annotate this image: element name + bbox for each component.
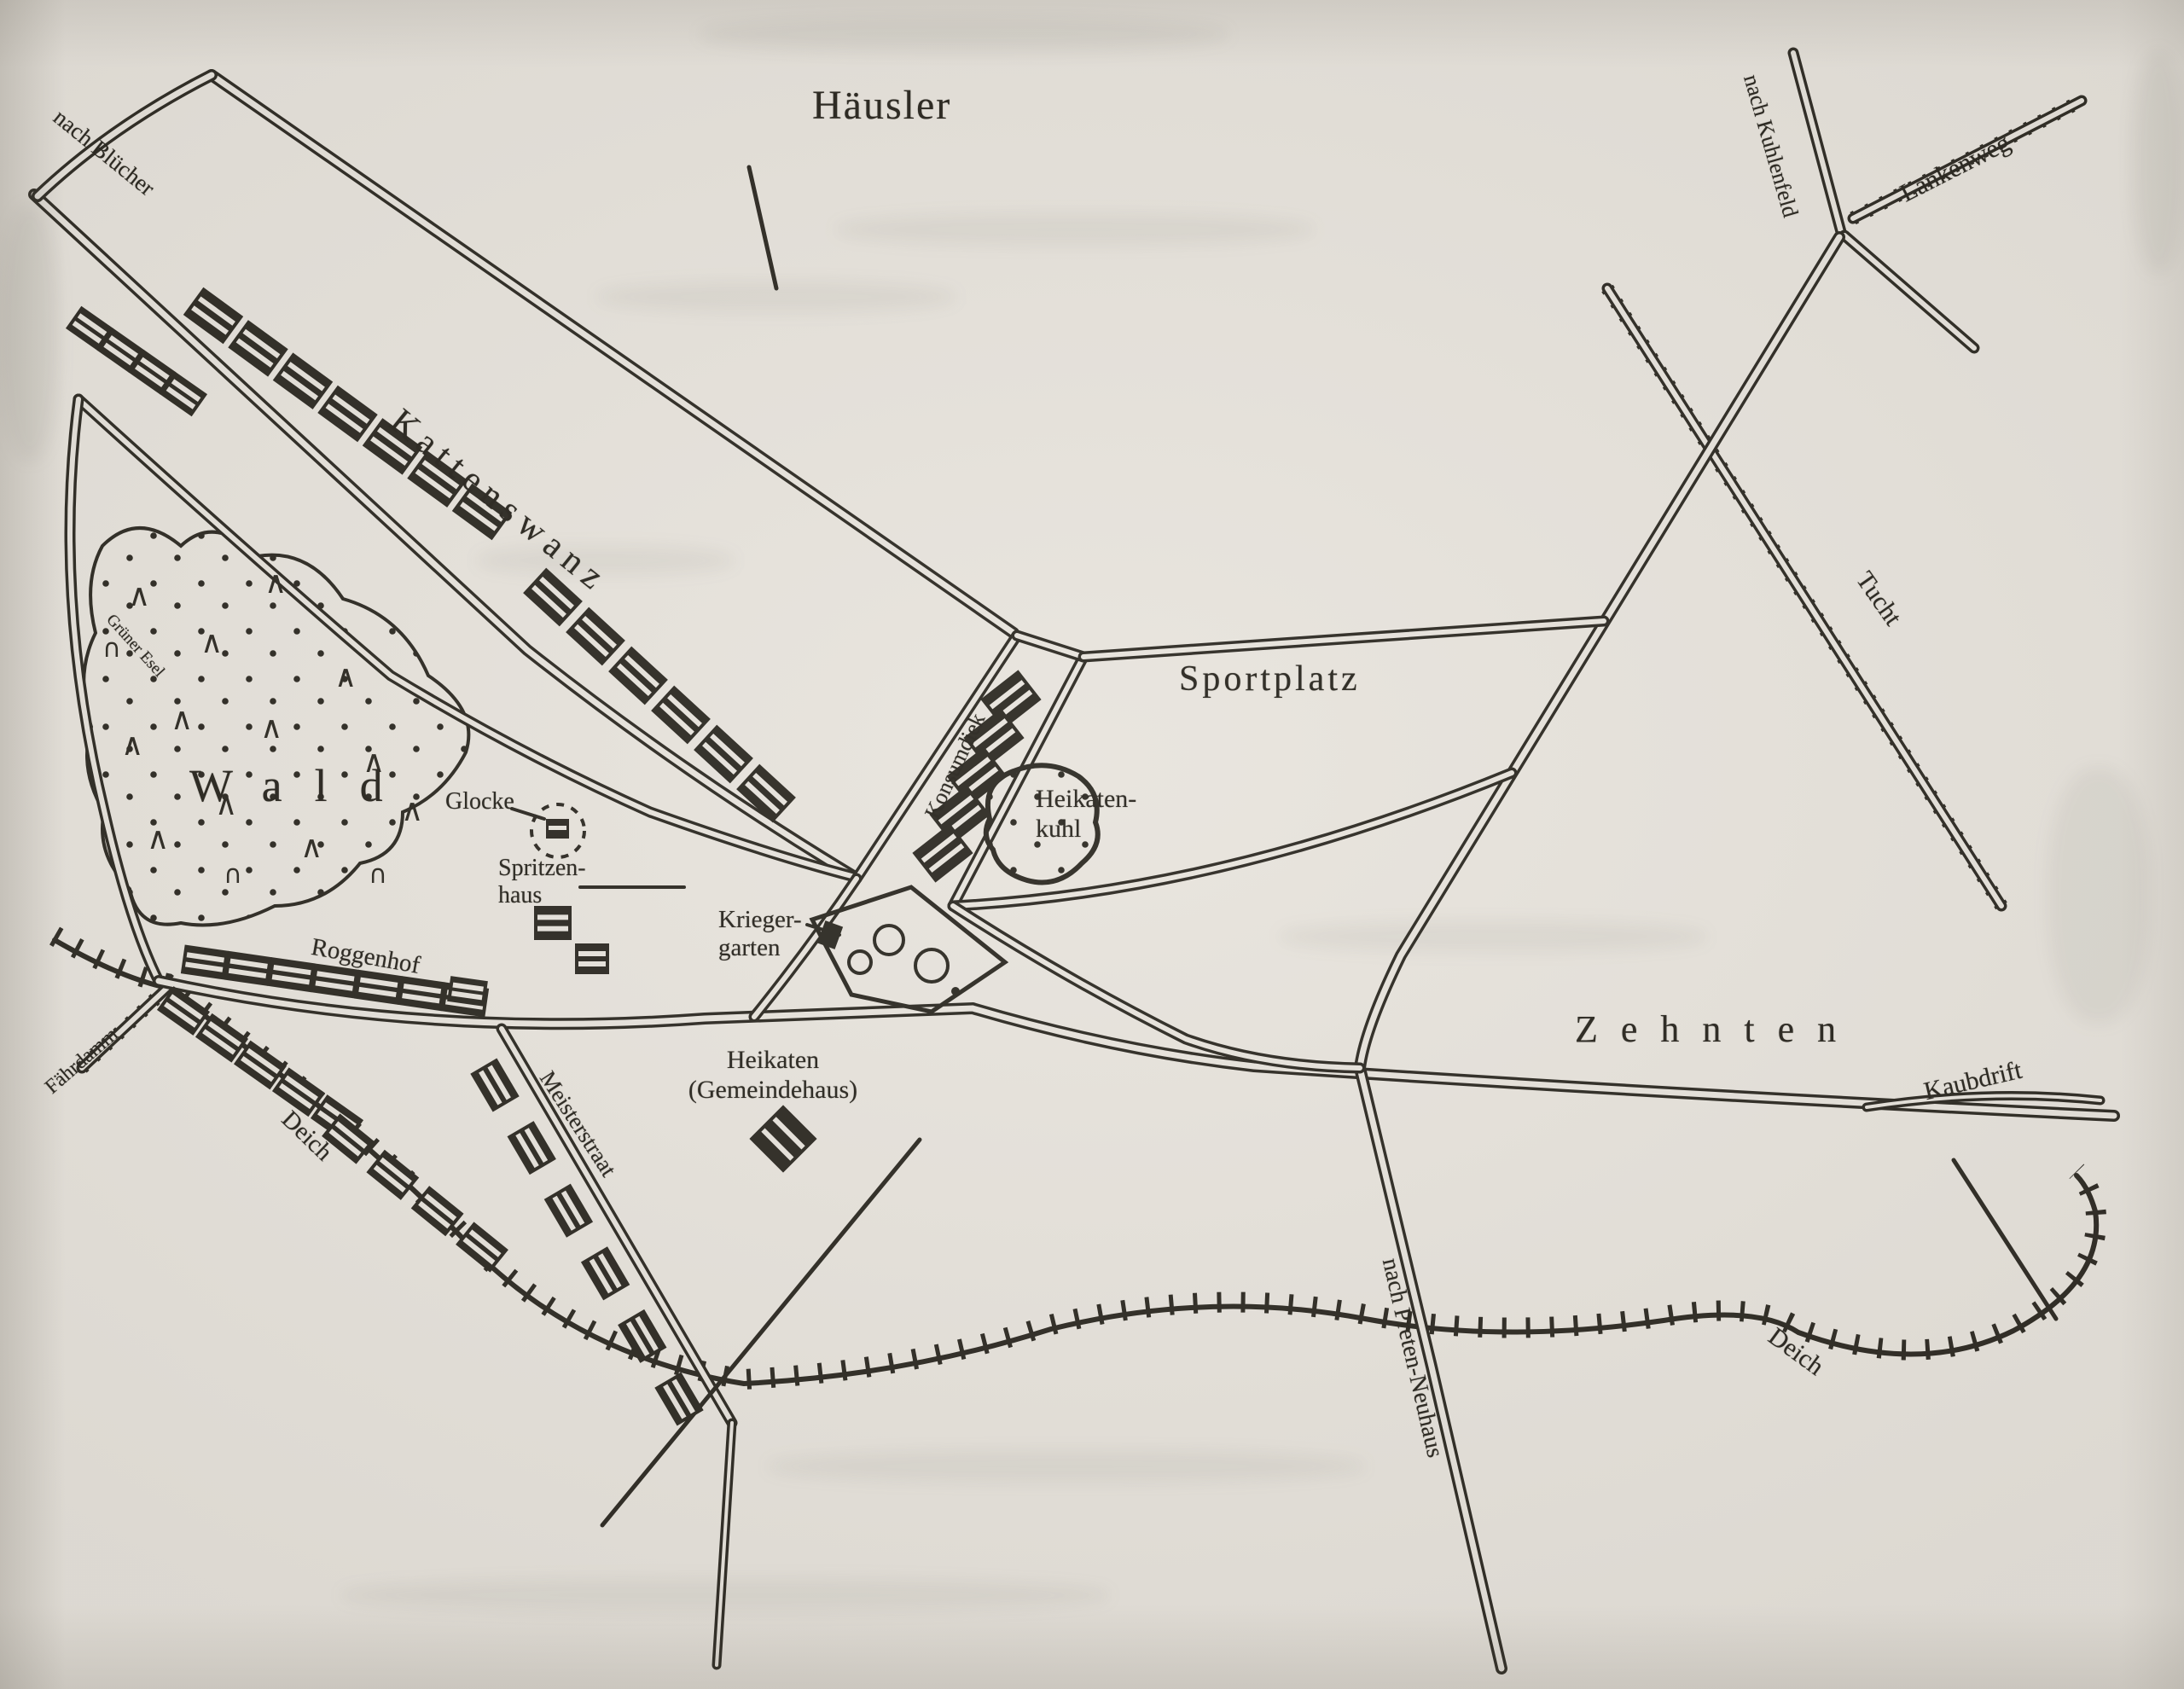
tree-icon: ∧ [300, 830, 322, 865]
tree-icon: ∩ [224, 860, 242, 890]
tree-icon: ∧ [171, 702, 193, 737]
tree-icon: ∧ [128, 578, 150, 613]
house-symbol [268, 957, 316, 992]
scanned-map-page: ∧∧∧∧∧∧∧∧∧∧∧∧∩∩∩ Häusler nach Blücher Kat… [0, 0, 2184, 1689]
house-symbol [534, 906, 572, 940]
tree-icon: ∧ [121, 728, 143, 763]
bell-glocke-icon [531, 804, 584, 857]
house-symbol [544, 1184, 593, 1238]
map-linework: ∧∧∧∧∧∧∧∧∧∧∧∧∩∩∩ [0, 0, 2184, 1689]
tree-icon: ∩ [369, 860, 387, 890]
house-symbol [273, 352, 333, 409]
house-symbol [181, 944, 229, 979]
label-heikatenkuhl: Heikaten- kuhl [1036, 785, 1136, 844]
tree-icon: ∧ [200, 625, 223, 660]
label-heikaten-gemeindehaus: Heikaten (Gemeindehaus) [628, 1046, 918, 1105]
tree-icon: ∧ [264, 566, 287, 601]
house-symbol [575, 943, 609, 974]
house-symbol [749, 1105, 816, 1172]
house-symbol [224, 951, 272, 986]
house-symbol [608, 647, 668, 705]
tree-icon: ∧ [334, 659, 357, 694]
label-zehnten: Zehnten [1575, 1008, 1859, 1052]
tree-icon: ∧ [147, 821, 169, 856]
label-kriegergarten: Krieger- garten [718, 906, 802, 963]
house-symbol [398, 976, 445, 1011]
house-symbol [581, 1246, 630, 1300]
hatched-tracks [82, 101, 2082, 1068]
house-symbol [566, 607, 625, 666]
house-symbol [618, 1309, 666, 1363]
tree-icon: ∧ [260, 711, 282, 746]
house-symbol [654, 1372, 703, 1425]
house-symbol [317, 386, 377, 443]
label-glocke: Glocke [445, 788, 514, 815]
house-symbol [470, 1058, 519, 1111]
map-title: Häusler [812, 82, 951, 129]
house-symbol [228, 320, 288, 377]
house-symbol [651, 686, 711, 745]
house-symbol [456, 1222, 508, 1272]
house-symbol [508, 1121, 556, 1175]
house-symbol [447, 976, 488, 1007]
label-sportplatz: Sportplatz [1179, 659, 1361, 699]
label-wald: Wald [189, 759, 415, 812]
dike-lines [55, 936, 2096, 1384]
label-spritzenhaus: Spritzen- haus [498, 855, 586, 909]
